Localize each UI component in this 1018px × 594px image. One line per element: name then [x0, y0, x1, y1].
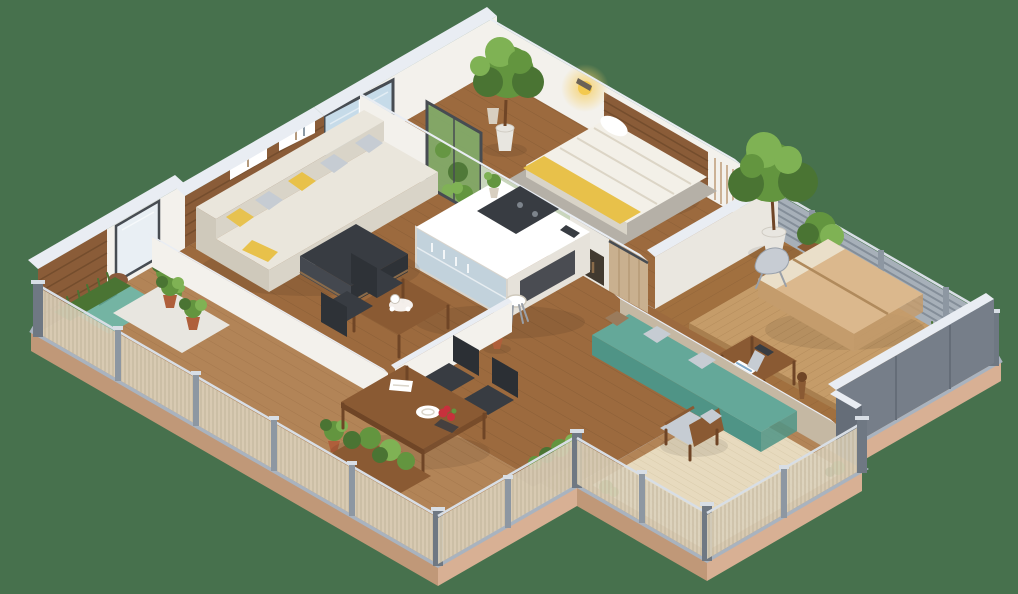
- napkins: [389, 379, 413, 392]
- floor-plan-render: [0, 0, 1018, 594]
- wall-lamp-glow: [561, 64, 609, 112]
- white-plate: [416, 406, 440, 419]
